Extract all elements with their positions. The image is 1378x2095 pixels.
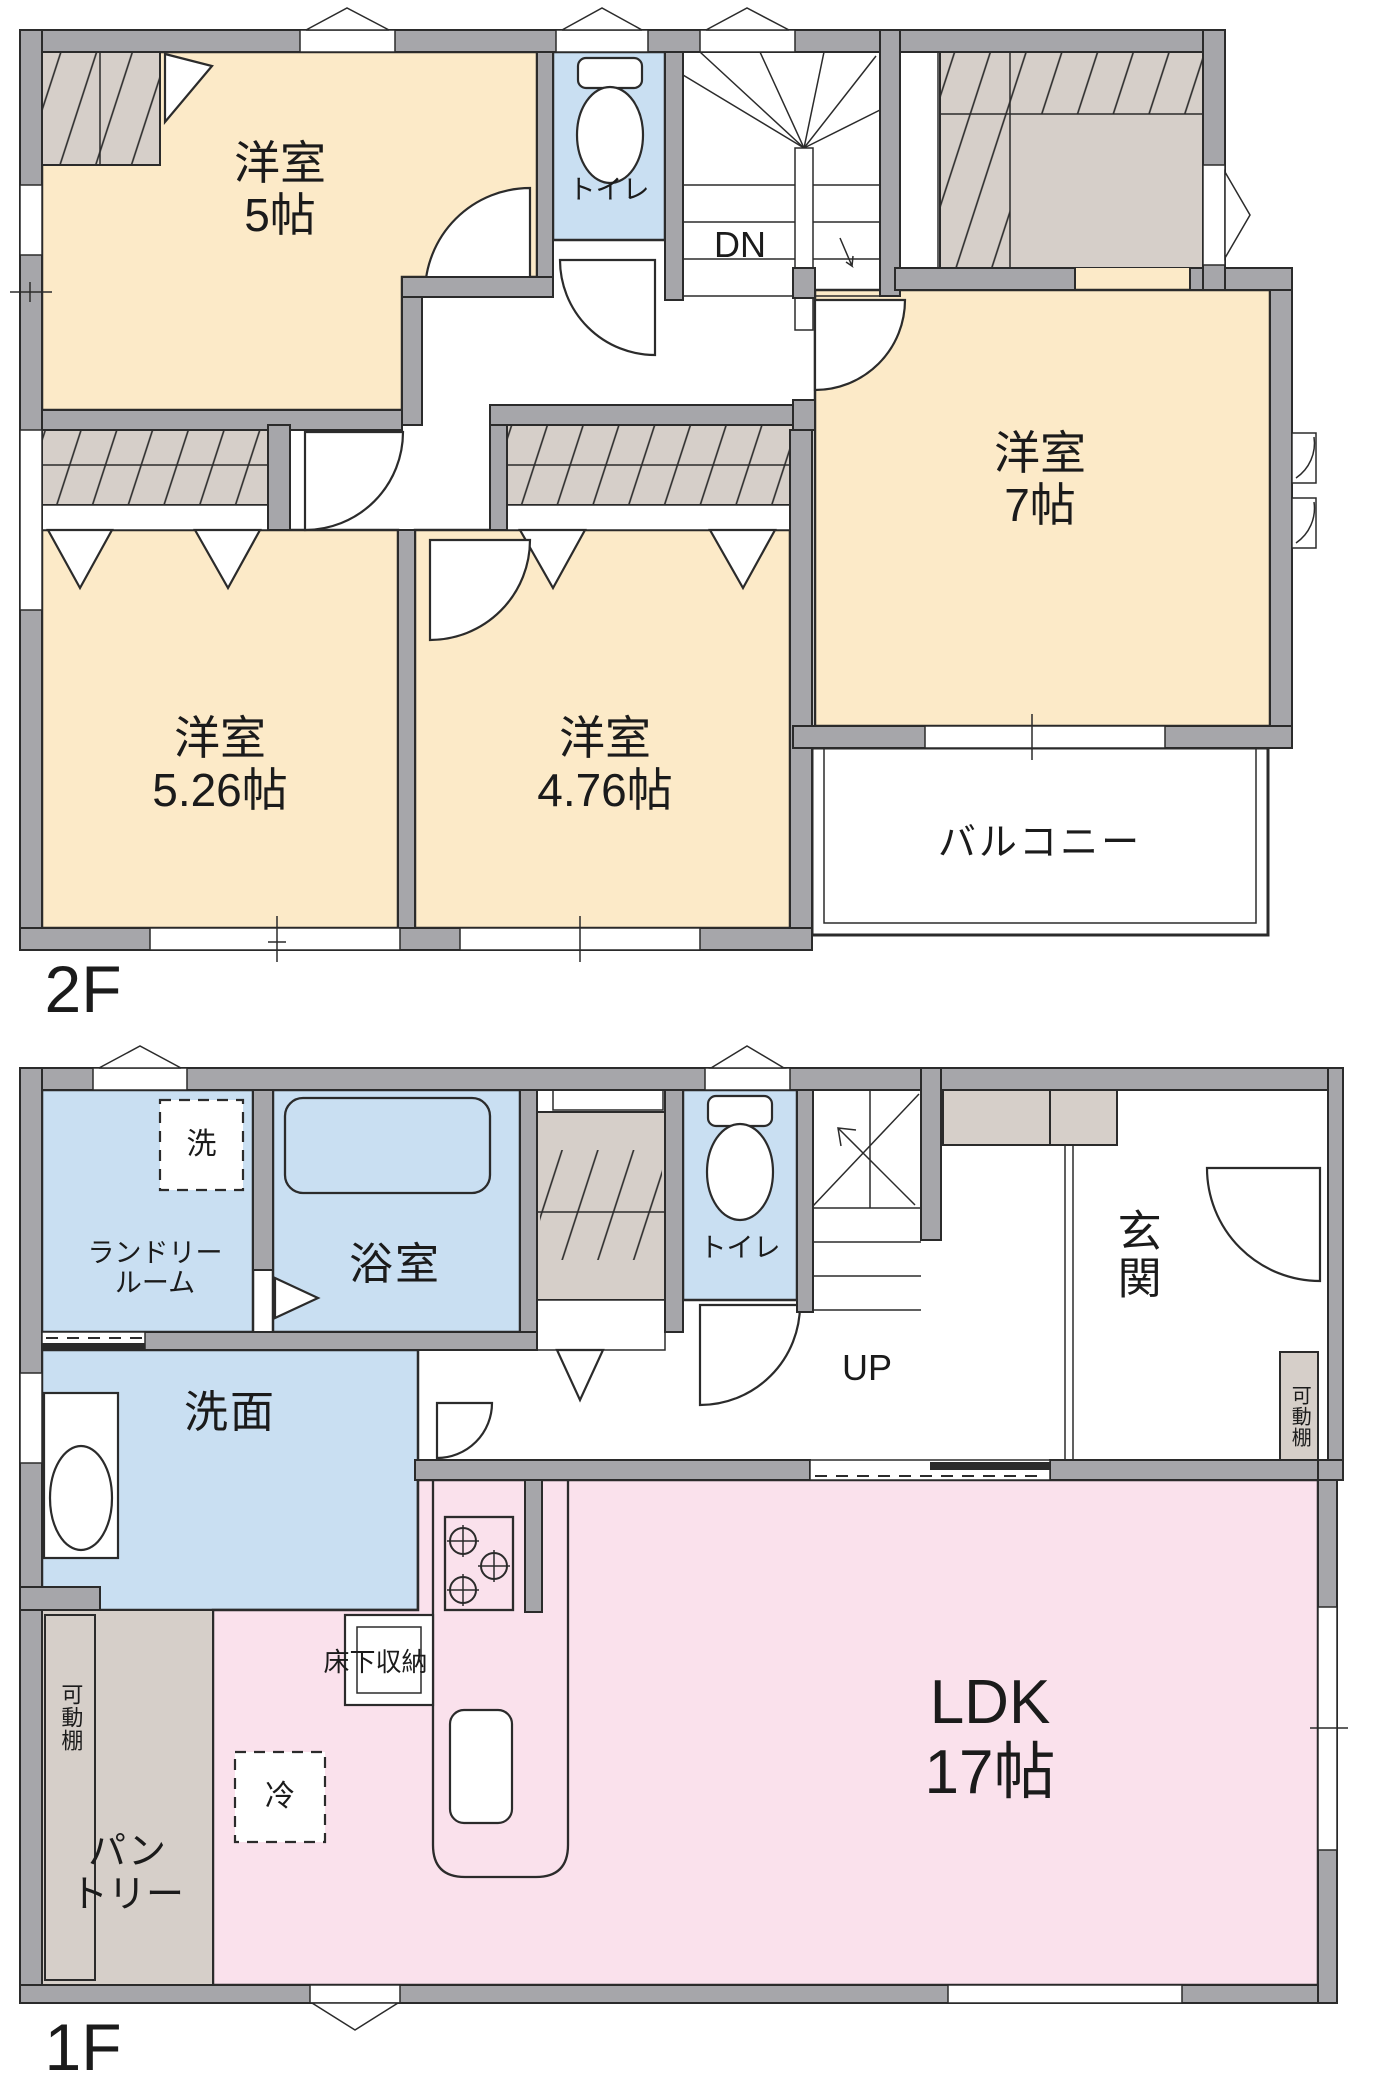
floorplan-canvas bbox=[0, 0, 1378, 2095]
window-vent-icon bbox=[562, 8, 642, 30]
label-entrance: 玄関 bbox=[1100, 1175, 1170, 1335]
room-size: 7帖 bbox=[1004, 480, 1076, 532]
room-name: トイレ bbox=[700, 1233, 781, 1263]
shoe-cabinet bbox=[943, 1090, 1117, 1145]
label-bedroom7: 洋室 7帖 bbox=[900, 400, 1180, 560]
label-shelf-right: 可動棚 bbox=[1280, 1356, 1318, 1476]
window-vent-icon bbox=[706, 8, 789, 30]
room-name: ルーム bbox=[115, 1268, 195, 1298]
label-toilet-1f: トイレ bbox=[683, 1218, 797, 1278]
room-name: 洋室 bbox=[174, 713, 266, 765]
room-name: ランドリー bbox=[88, 1238, 223, 1268]
fixture-name: 洗 bbox=[187, 1128, 217, 1162]
label-bathroom: 浴室 bbox=[300, 1235, 490, 1295]
room-name: トリー bbox=[70, 1874, 184, 1917]
room-name: 洋室 bbox=[994, 428, 1086, 480]
room-name: 浴室 bbox=[349, 1240, 441, 1289]
kitchen-sink-icon bbox=[450, 1710, 512, 1823]
label-shelf-left: 可動棚 bbox=[46, 1630, 94, 1805]
room-name: 洗面 bbox=[184, 1388, 276, 1437]
room-name: 洋室 bbox=[234, 138, 326, 190]
label-toilet-2f: トイレ bbox=[553, 160, 665, 220]
window-vent-icon bbox=[99, 1046, 181, 1068]
fixture-name: 床下収納 bbox=[323, 1648, 427, 1677]
label-laundry: ランドリー ルーム bbox=[50, 1222, 260, 1314]
floor-plan-page: 洋室 5帖 トイレ DN 洋室 7帖 洋室 5.26帖 洋室 4.76帖 バルコ… bbox=[0, 0, 1378, 2095]
label-washer: 洗 bbox=[160, 1100, 243, 1190]
label-balcony: バルコニー bbox=[880, 818, 1200, 868]
vanity-sink-icon bbox=[44, 1393, 118, 1558]
floor-label-2f: 2F bbox=[18, 952, 148, 1027]
room-name: トイレ bbox=[569, 175, 650, 205]
floor-label: 1F bbox=[44, 2011, 121, 2085]
floor-label: 2F bbox=[44, 953, 121, 1027]
room-size: 4.76帖 bbox=[537, 765, 673, 817]
label-stairs-dn: DN bbox=[700, 223, 780, 267]
room-name: 玄関 bbox=[1110, 1208, 1159, 1302]
stairs-direction: DN bbox=[714, 225, 766, 265]
toilet-icon-1f bbox=[707, 1096, 773, 1220]
window-vent-icon bbox=[306, 8, 389, 30]
label-bedroom476: 洋室 4.76帖 bbox=[440, 690, 770, 840]
floor-label-1f: 1F bbox=[18, 2010, 148, 2085]
label-stairs-up: UP bbox=[827, 1346, 907, 1390]
label-pantry: パン トリー bbox=[42, 1818, 212, 1930]
room-name: 洋室 bbox=[559, 713, 651, 765]
shelf-name: 可動棚 bbox=[1288, 1385, 1310, 1448]
label-fridge: 冷 bbox=[235, 1752, 325, 1842]
room-size: 5帖 bbox=[244, 190, 316, 242]
label-washroom: 洗面 bbox=[130, 1383, 330, 1443]
window-vent-icon bbox=[312, 2003, 398, 2030]
stairs-direction: UP bbox=[842, 1348, 892, 1388]
label-bedroom5: 洋室 5帖 bbox=[150, 120, 410, 260]
room-name: バルコニー bbox=[938, 822, 1142, 865]
window-vent-icon bbox=[711, 1046, 784, 1068]
label-bedroom526: 洋室 5.26帖 bbox=[70, 690, 370, 840]
fixture-name: 冷 bbox=[265, 1780, 295, 1814]
room-name: LDK bbox=[930, 1668, 1051, 1737]
room-size: 5.26帖 bbox=[152, 765, 288, 817]
room-size: 17帖 bbox=[925, 1738, 1056, 1807]
wic-opening-floor bbox=[1075, 268, 1190, 292]
label-floor-storage: 床下収納 bbox=[298, 1645, 453, 1681]
label-ldk: LDK 17帖 bbox=[880, 1650, 1100, 1825]
room-name: パン bbox=[88, 1831, 166, 1874]
shelf-name: 可動棚 bbox=[58, 1683, 83, 1752]
